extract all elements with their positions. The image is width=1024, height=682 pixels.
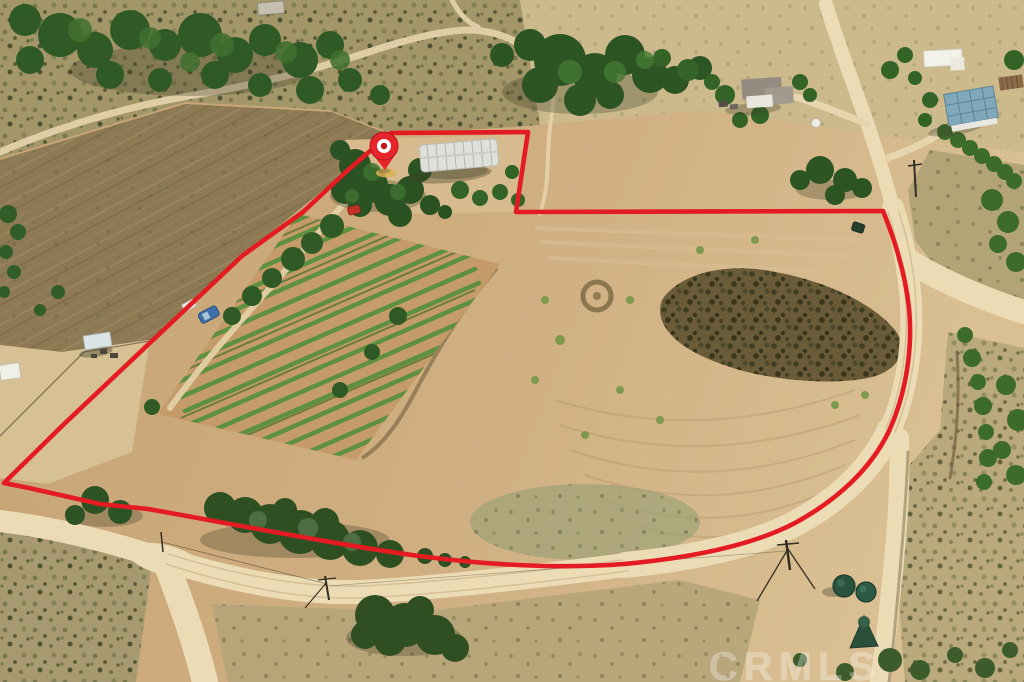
white-shed — [0, 363, 21, 381]
aerial-photo: CRMLS — [0, 0, 1024, 682]
white-tank — [812, 119, 821, 128]
small-cabin — [258, 1, 285, 15]
watermark: CRMLS — [709, 645, 881, 682]
